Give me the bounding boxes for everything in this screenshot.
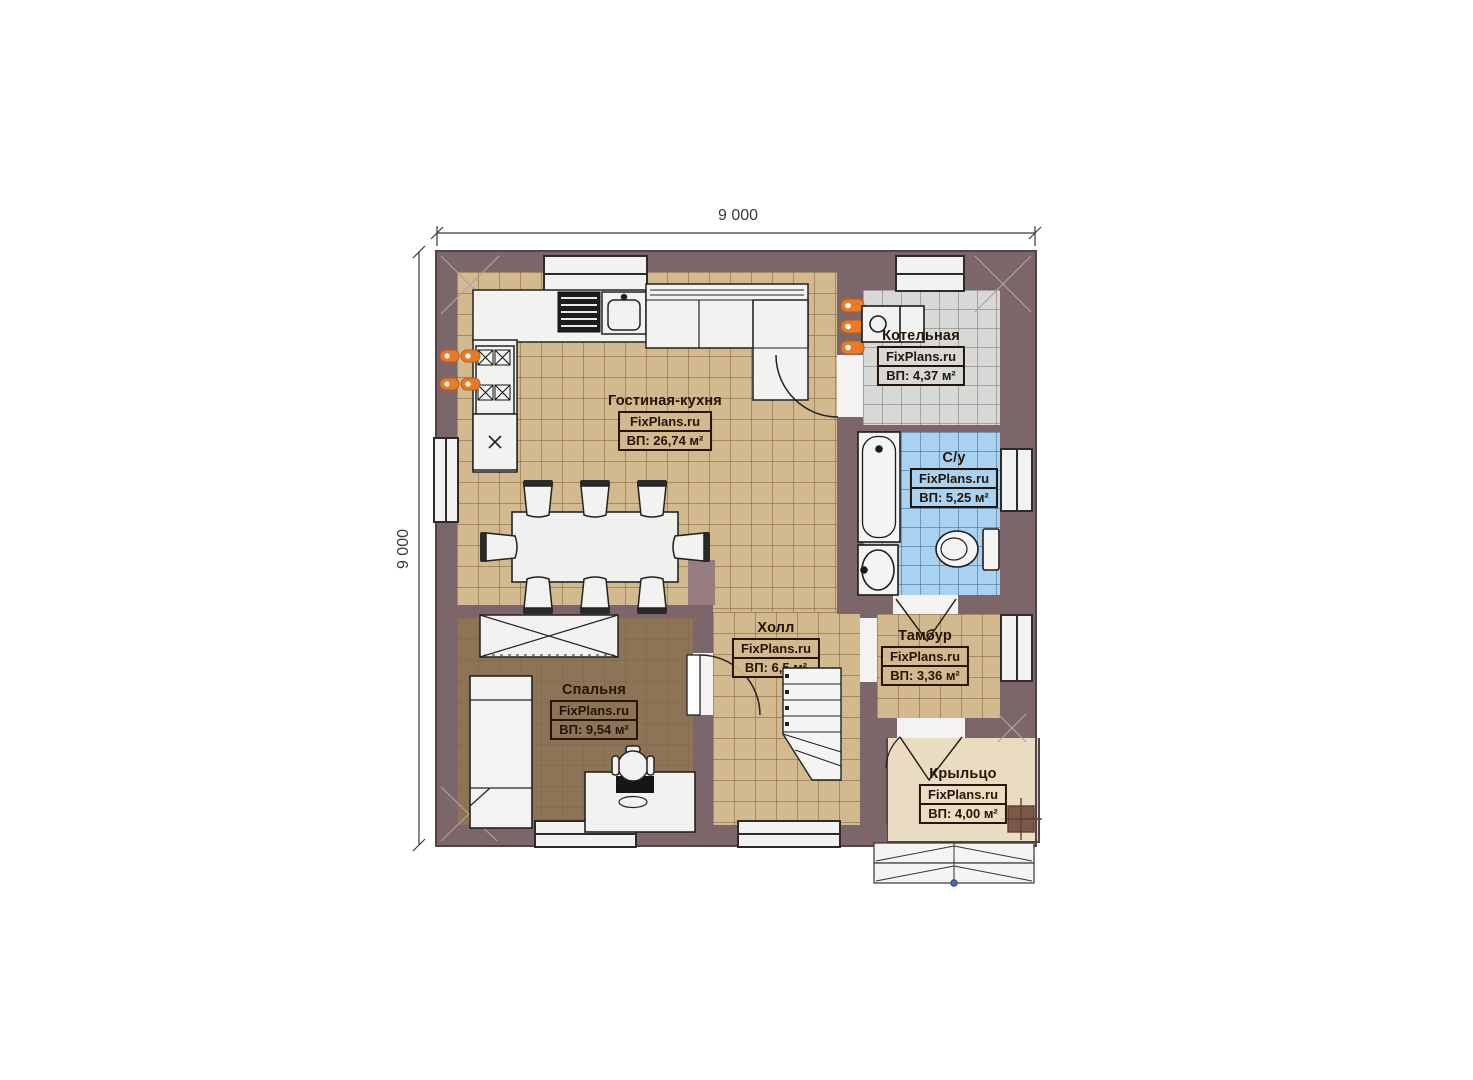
cabinet-icon xyxy=(473,414,517,470)
kitchen-sink-icon xyxy=(602,292,646,334)
sofa xyxy=(646,284,808,400)
room-name: С/у xyxy=(910,450,998,466)
porch-steps xyxy=(874,843,1034,886)
room-label-vestibule: Тамбур FixPlans.ru ВП: 3,36 м² xyxy=(881,628,969,686)
plan-vector-layer xyxy=(0,0,1473,1080)
room-name: Крыльцо xyxy=(919,766,1007,782)
dining-table xyxy=(512,512,678,582)
wardrobe-icon xyxy=(480,615,618,657)
watermark: FixPlans.ru xyxy=(620,413,711,432)
door-leaf-bedroom xyxy=(687,655,700,715)
door-arc-entrance xyxy=(886,737,900,768)
room-area: ВП: 4,00 м² xyxy=(921,805,1005,822)
room-label-hall: Холл FixPlans.ru ВП: 6,5 м² xyxy=(732,620,820,678)
room-area: ВП: 6,5 м² xyxy=(734,659,818,676)
watermark: FixPlans.ru xyxy=(912,470,996,489)
room-name: Котельная xyxy=(877,328,965,344)
room-area: ВП: 5,25 м² xyxy=(912,489,996,506)
room-label-living-kitchen: Гостиная-кухня FixPlans.ru ВП: 26,74 м² xyxy=(608,393,722,451)
room-label-porch: Крыльцо FixPlans.ru ВП: 4,00 м² xyxy=(919,766,1007,824)
room-area: ВП: 9,54 м² xyxy=(552,721,636,738)
room-name: Тамбур xyxy=(881,628,969,644)
door-arcs xyxy=(687,355,962,780)
watermark: FixPlans.ru xyxy=(734,640,818,659)
watermark: FixPlans.ru xyxy=(921,786,1005,805)
watermark: FixPlans.ru xyxy=(552,702,636,721)
room-label-bedroom: Спальня FixPlans.ru ВП: 9,54 м² xyxy=(550,682,638,740)
room-name: Холл xyxy=(732,620,820,636)
room-label-bathroom: С/у FixPlans.ru ВП: 5,25 м² xyxy=(910,450,998,508)
dimension-left: 9 000 xyxy=(395,521,413,577)
stove-icon xyxy=(476,346,514,414)
room-area: ВП: 3,36 м² xyxy=(883,667,967,684)
dimension-top: 9 000 xyxy=(710,207,766,225)
room-area: ВП: 4,37 м² xyxy=(879,367,963,384)
watermark: FixPlans.ru xyxy=(883,648,967,667)
room-name: Гостиная-кухня xyxy=(608,393,722,409)
room-name: Спальня xyxy=(550,682,638,698)
watermark: FixPlans.ru xyxy=(879,348,963,367)
floor-plan-canvas: Гостиная-кухня FixPlans.ru ВП: 26,74 м² … xyxy=(0,0,1473,1080)
desk xyxy=(585,772,695,832)
room-area: ВП: 26,74 м² xyxy=(620,432,711,449)
bed xyxy=(470,676,532,828)
toilet-icon xyxy=(936,529,999,570)
bathtub-icon xyxy=(858,432,900,542)
bathroom-sink-icon xyxy=(858,545,898,595)
room-label-boiler: Котельная FixPlans.ru ВП: 4,37 м² xyxy=(877,328,965,386)
dishwasher-icon xyxy=(558,292,600,332)
